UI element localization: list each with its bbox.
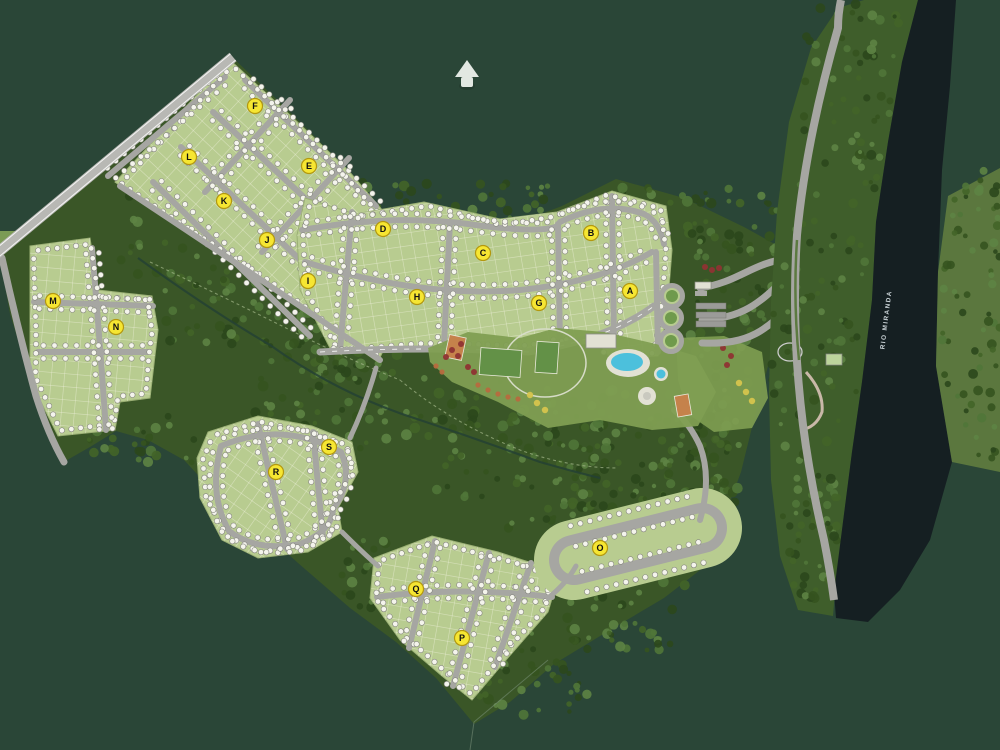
block-marker-e: E bbox=[302, 159, 317, 174]
north-arrow-stem bbox=[461, 77, 473, 87]
block-marker-m: M bbox=[46, 294, 61, 309]
block-marker-a: A bbox=[623, 284, 638, 299]
gatehouse bbox=[695, 282, 711, 289]
block-marker-l: L bbox=[182, 150, 197, 165]
block-letter: K bbox=[221, 196, 228, 206]
roundabout-island bbox=[665, 312, 677, 324]
block-letter: E bbox=[306, 161, 312, 171]
block-letter: H bbox=[414, 292, 421, 302]
block-marker-s: S bbox=[322, 440, 337, 455]
block-marker-c: C bbox=[476, 246, 491, 261]
block-marker-q: Q bbox=[409, 582, 424, 597]
parking-row bbox=[696, 303, 726, 309]
block-letter: N bbox=[113, 322, 120, 332]
block-letter: O bbox=[596, 543, 603, 553]
block-marker-d: D bbox=[376, 222, 391, 237]
roundabout-island bbox=[666, 290, 678, 302]
block-letter: I bbox=[307, 276, 310, 286]
site-plan-map: RIO MIRANDA ABCDEFGHIJKLMNOPQRS bbox=[0, 0, 1000, 750]
parking-row bbox=[696, 321, 726, 327]
plaza-center bbox=[643, 392, 651, 400]
block-letter: M bbox=[49, 296, 57, 306]
block-marker-j: J bbox=[260, 233, 275, 248]
block-marker-o: O bbox=[593, 541, 608, 556]
sports-court bbox=[535, 341, 559, 373]
block-letter: S bbox=[326, 442, 332, 452]
gatehouse bbox=[695, 291, 707, 296]
block-marker-n: N bbox=[109, 320, 124, 335]
block-marker-g: G bbox=[532, 296, 547, 311]
soccer-field bbox=[479, 348, 522, 378]
parking-row bbox=[696, 312, 726, 318]
riverside-club-building bbox=[826, 354, 842, 365]
block-marker-k: K bbox=[217, 194, 232, 209]
block-letter: G bbox=[535, 298, 542, 308]
block-letter: R bbox=[273, 467, 280, 477]
block-marker-b: B bbox=[584, 226, 599, 241]
block-letter: F bbox=[252, 101, 258, 111]
block-letter: D bbox=[380, 224, 387, 234]
masterplan-canvas: RIO MIRANDA ABCDEFGHIJKLMNOPQRS bbox=[0, 0, 1000, 750]
block-letter: C bbox=[480, 248, 487, 258]
block-letter: J bbox=[264, 235, 269, 245]
road bbox=[656, 252, 658, 352]
block-letter: Q bbox=[412, 584, 419, 594]
kids-pool bbox=[657, 370, 666, 379]
clubhouse bbox=[586, 334, 616, 348]
block-marker-r: R bbox=[269, 465, 284, 480]
block-marker-i: I bbox=[301, 274, 316, 289]
block-marker-h: H bbox=[410, 290, 425, 305]
block-letter: L bbox=[186, 152, 192, 162]
block-letter: A bbox=[627, 286, 634, 296]
block-marker-p: P bbox=[455, 631, 470, 646]
block-letter: B bbox=[588, 228, 595, 238]
swimming-pool bbox=[611, 353, 643, 371]
block-marker-f: F bbox=[248, 99, 263, 114]
roundabout-island bbox=[665, 335, 677, 347]
block-letter: P bbox=[459, 633, 465, 643]
